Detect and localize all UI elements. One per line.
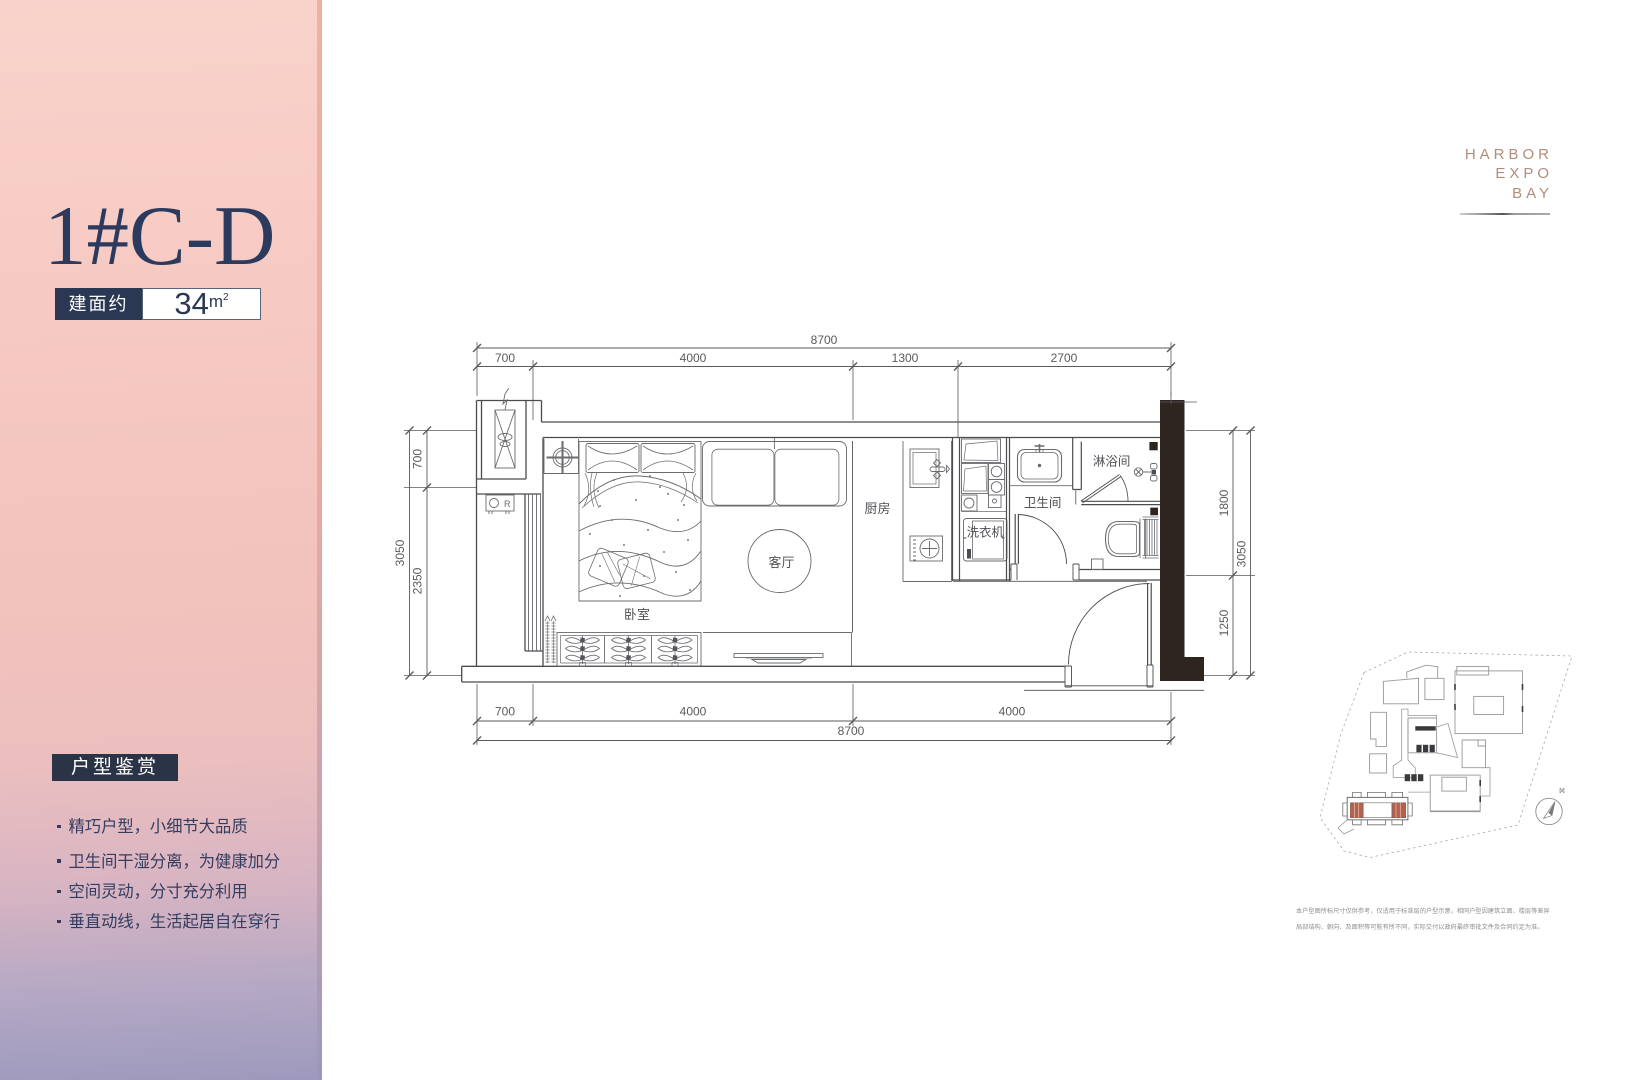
svg-text:R: R	[504, 499, 511, 509]
svg-text:700: 700	[411, 449, 425, 469]
svg-text:淋浴间: 淋浴间	[1093, 455, 1131, 469]
svg-text:2700: 2700	[1051, 351, 1078, 365]
svg-text:4000: 4000	[680, 351, 707, 365]
svg-text:3050: 3050	[393, 539, 407, 566]
svg-text:700: 700	[495, 705, 515, 719]
svg-text:700: 700	[495, 351, 515, 365]
svg-text:4000: 4000	[999, 705, 1026, 719]
svg-text:8700: 8700	[811, 333, 838, 347]
svg-text:2350: 2350	[411, 567, 425, 594]
svg-text:8700: 8700	[838, 724, 865, 738]
svg-text:卧室: 卧室	[624, 607, 650, 622]
svg-text:1800: 1800	[1217, 489, 1231, 516]
svg-text:洗衣机: 洗衣机	[967, 525, 1005, 540]
svg-text:3050: 3050	[1235, 540, 1249, 567]
svg-text:4000: 4000	[680, 705, 707, 719]
svg-text:1250: 1250	[1217, 609, 1231, 636]
svg-text:客厅: 客厅	[769, 555, 795, 570]
svg-text:厨房: 厨房	[865, 501, 891, 516]
svg-text:卫生间: 卫生间	[1024, 496, 1062, 510]
svg-text:1300: 1300	[892, 351, 919, 365]
